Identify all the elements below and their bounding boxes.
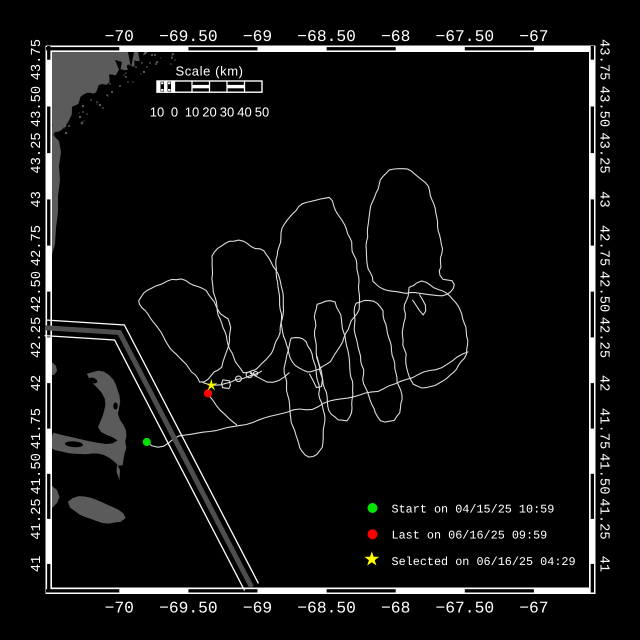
svg-text:41.50: 41.50 (30, 453, 45, 494)
svg-text:−67: −67 (519, 27, 548, 46)
svg-text:43.75: 43.75 (596, 39, 611, 80)
svg-text:Start on 04/15/25 10:59: Start on 04/15/25 10:59 (392, 503, 555, 517)
svg-text:43.25: 43.25 (30, 132, 45, 173)
svg-text:−69: −69 (243, 27, 272, 46)
svg-text:41.25: 41.25 (30, 498, 45, 539)
svg-text:41.75: 41.75 (596, 408, 611, 449)
svg-text:−68.50: −68.50 (297, 599, 356, 618)
svg-text:41: 41 (30, 556, 45, 573)
svg-text:50: 50 (255, 105, 269, 120)
svg-text:−70: −70 (105, 27, 134, 46)
svg-text:10: 10 (150, 105, 164, 120)
svg-text:42.25: 42.25 (30, 317, 45, 358)
svg-text:43.25: 43.25 (596, 132, 611, 173)
svg-text:43.50: 43.50 (596, 86, 611, 127)
svg-text:42.50: 42.50 (30, 271, 45, 312)
svg-text:−67.50: −67.50 (435, 599, 494, 618)
svg-text:Scale (km): Scale (km) (175, 64, 243, 79)
svg-text:41.25: 41.25 (596, 498, 611, 539)
svg-text:−69.50: −69.50 (159, 27, 218, 46)
svg-text:30: 30 (220, 105, 234, 120)
svg-text:43: 43 (596, 191, 611, 208)
svg-text:42.50: 42.50 (596, 271, 611, 312)
svg-text:−67.50: −67.50 (435, 27, 494, 46)
svg-text:41: 41 (596, 556, 611, 573)
svg-text:0: 0 (171, 105, 178, 120)
svg-text:−68: −68 (381, 599, 410, 618)
svg-text:42.75: 42.75 (596, 225, 611, 266)
svg-text:42.75: 42.75 (30, 225, 45, 266)
svg-text:41.50: 41.50 (596, 453, 611, 494)
svg-text:42.25: 42.25 (596, 317, 611, 358)
svg-text:10: 10 (185, 105, 199, 120)
svg-text:43: 43 (30, 191, 45, 208)
svg-text:41.75: 41.75 (30, 408, 45, 449)
svg-text:−67: −67 (519, 599, 548, 618)
svg-text:43.75: 43.75 (30, 39, 45, 80)
svg-text:Selected on 06/16/25 04:29: Selected on 06/16/25 04:29 (392, 555, 576, 569)
svg-text:43.50: 43.50 (30, 86, 45, 127)
svg-text:40: 40 (237, 105, 251, 120)
svg-text:42: 42 (596, 375, 611, 392)
svg-text:20: 20 (202, 105, 216, 120)
svg-text:−69.50: −69.50 (159, 599, 218, 618)
svg-text:−70: −70 (105, 599, 134, 618)
svg-text:42: 42 (30, 375, 45, 392)
svg-text:−68: −68 (381, 27, 410, 46)
svg-text:−68.50: −68.50 (297, 27, 356, 46)
svg-text:Last on 06/16/25 09:59: Last on 06/16/25 09:59 (392, 529, 548, 543)
svg-text:−69: −69 (243, 599, 272, 618)
